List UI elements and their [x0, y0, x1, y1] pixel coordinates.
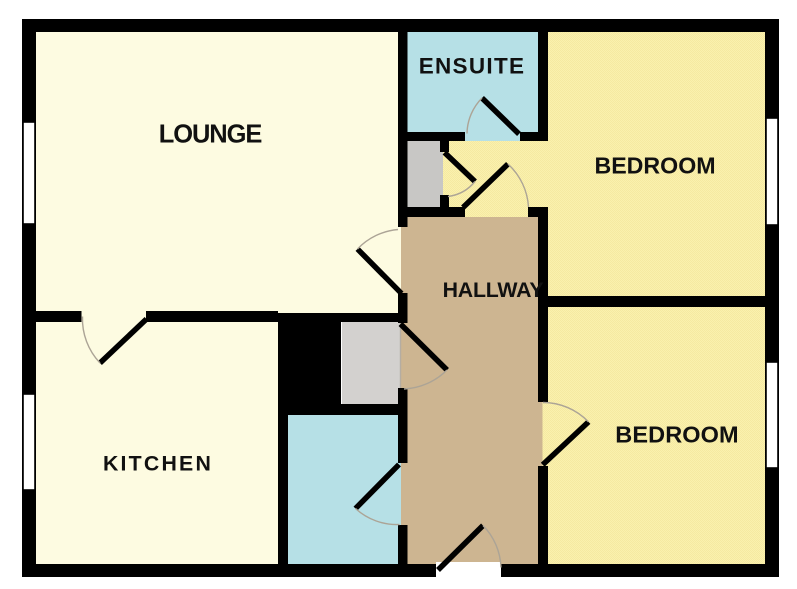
svg-text:LOUNGE: LOUNGE: [159, 121, 263, 149]
svg-text:BEDROOM: BEDROOM: [594, 153, 715, 179]
svg-text:ENSUITE: ENSUITE: [419, 54, 526, 79]
svg-text:KITCHEN: KITCHEN: [103, 451, 213, 475]
svg-text:HALLWAY: HALLWAY: [443, 278, 544, 302]
svg-text:BEDROOM: BEDROOM: [615, 421, 738, 447]
